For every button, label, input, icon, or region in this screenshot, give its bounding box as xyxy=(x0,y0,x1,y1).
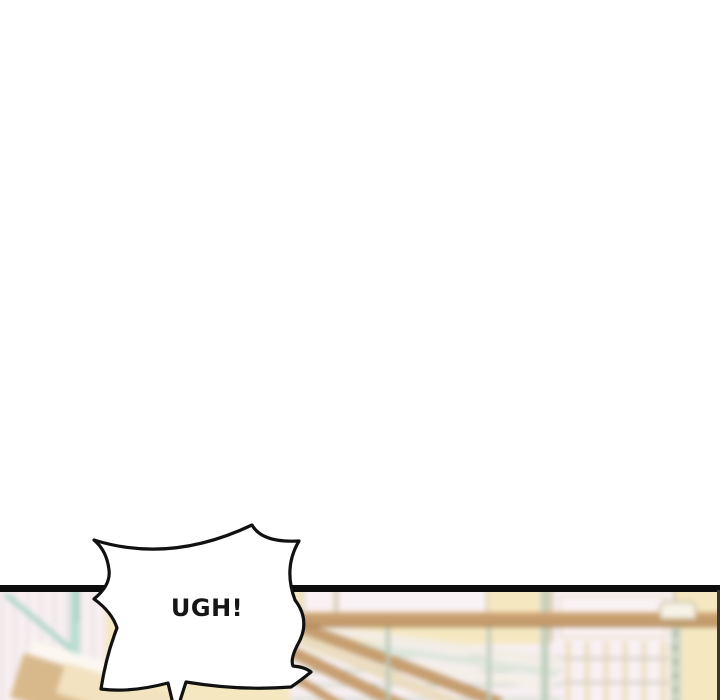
comic-page: UGH! xyxy=(0,0,720,700)
railing-post xyxy=(386,622,390,700)
speech-bubble-text: UGH! xyxy=(155,593,259,623)
newel-post-cap xyxy=(659,601,697,620)
window-mullion xyxy=(551,681,669,684)
railing-post xyxy=(541,592,548,700)
wooden-handrail xyxy=(268,612,720,627)
post-bolts xyxy=(674,618,677,700)
railing-post xyxy=(487,622,491,700)
paned-window xyxy=(551,641,669,700)
page-whitespace xyxy=(0,0,720,585)
window-mullion xyxy=(551,657,669,660)
